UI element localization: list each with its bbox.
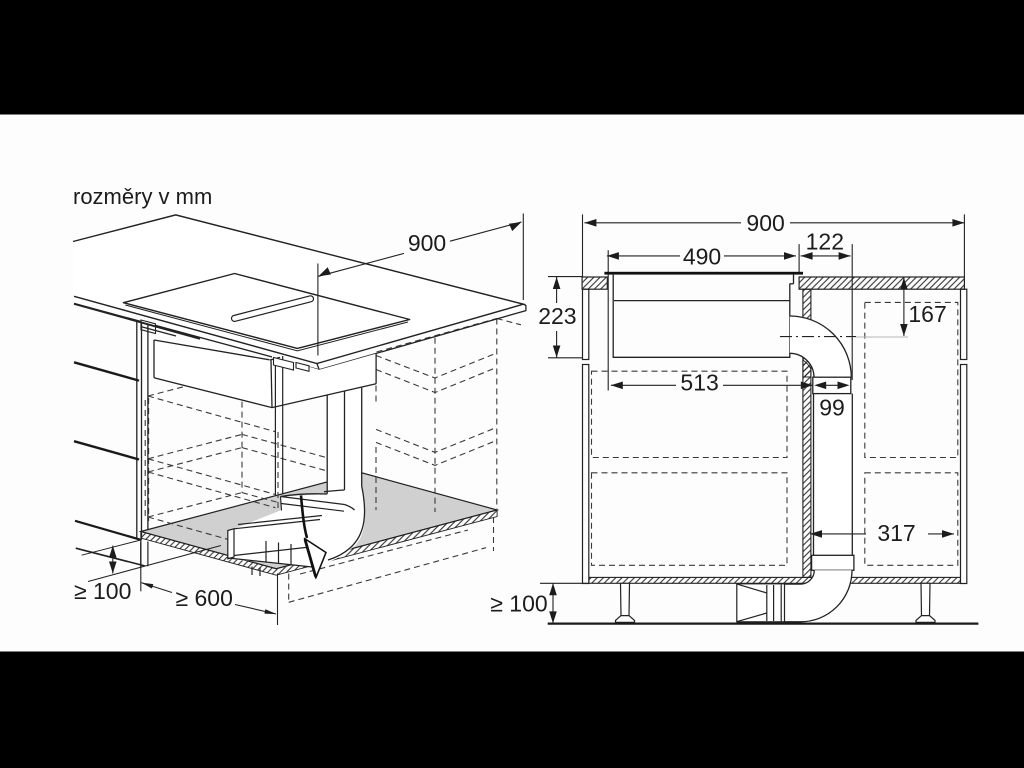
svg-text:490: 490	[683, 244, 721, 270]
svg-text:rozměry v mm: rozměry v mm	[73, 184, 212, 209]
svg-text:99: 99	[819, 395, 845, 421]
svg-text:513: 513	[680, 370, 718, 396]
svg-text:900: 900	[746, 210, 784, 236]
svg-text:900: 900	[408, 230, 446, 256]
svg-text:167: 167	[908, 301, 946, 327]
svg-text:122: 122	[806, 229, 844, 255]
svg-text:≥ 100: ≥ 100	[490, 591, 547, 617]
svg-text:317: 317	[877, 520, 915, 546]
svg-text:≥ 600: ≥ 600	[176, 585, 233, 611]
svg-text:≥ 100: ≥ 100	[74, 578, 131, 604]
svg-text:223: 223	[538, 303, 576, 329]
